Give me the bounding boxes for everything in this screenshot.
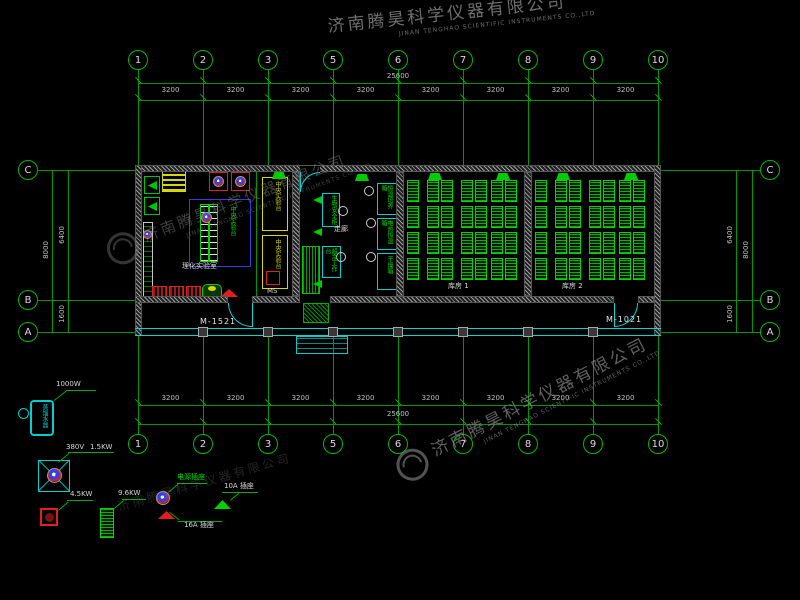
grid-bubble-col-bottom: 5	[323, 434, 343, 454]
dim-bay-label: 3200	[415, 394, 446, 402]
dim-bay-label: 3200	[285, 86, 316, 94]
grid-bubble-col-top: 2	[193, 50, 213, 70]
dimension-line	[138, 83, 659, 84]
dimension-line	[138, 100, 659, 101]
stool	[336, 252, 346, 262]
storage-rack-segment	[569, 232, 581, 254]
grid-line-vertical	[203, 70, 204, 165]
storage-rack-segment	[555, 258, 567, 280]
storage-rack-segment	[461, 180, 473, 202]
door-label-left: M-1521	[200, 317, 242, 326]
grid-line-vertical	[398, 70, 399, 165]
dimension-line	[138, 424, 659, 425]
grid-bubble-col-bottom: 3	[258, 434, 278, 454]
grid-line-vertical	[333, 70, 334, 165]
dim-bay-label: 3200	[350, 86, 381, 94]
room-label: 理化实验室	[182, 263, 230, 271]
dim-label-vertical: 6400	[58, 220, 66, 250]
leader-line	[177, 483, 207, 484]
storage-rack-segment	[603, 180, 615, 202]
dim-bay-label: 3200	[545, 86, 576, 94]
dim-bay-label: 3200	[350, 394, 381, 402]
storage-rack-segment	[427, 232, 439, 254]
bench-zone	[189, 199, 251, 267]
leader-line	[68, 452, 114, 453]
stool	[366, 252, 376, 262]
watermark: 济南腾昊科学仪器有限公司 JINAN TENGHAO SCIENTIFIC IN…	[391, 326, 662, 486]
grid-line-horizontal	[661, 300, 760, 301]
storage-rack-segment	[555, 206, 567, 228]
grid-line-vertical	[398, 336, 399, 434]
grid-line-vertical	[268, 336, 269, 434]
grid-line-vertical	[658, 70, 659, 165]
storage-rack-segment	[619, 206, 631, 228]
diffuser-icon	[624, 173, 638, 180]
storage-rack-segment	[475, 258, 487, 280]
storage-rack-segment	[461, 206, 473, 228]
window-icon	[523, 327, 533, 337]
storage-rack-segment	[491, 206, 503, 228]
leader-line	[54, 390, 67, 401]
storage-rack-segment	[491, 232, 503, 254]
wall-top	[135, 165, 661, 172]
storage-rack-segment	[475, 232, 487, 254]
dim-bay-label: 3200	[220, 86, 251, 94]
dim-total-label: 25600	[368, 72, 428, 80]
legend-socket-power-label: 电源插座	[177, 474, 205, 482]
grid-bubble-row-right: C	[760, 160, 780, 180]
wall-cabinet	[162, 170, 186, 192]
leader-line	[114, 500, 124, 508]
grid-bubble-col-top: 5	[323, 50, 343, 70]
storage-rack-segment	[491, 180, 503, 202]
dim-label-vertical: 1600	[726, 299, 734, 329]
dim-bay-label: 3200	[480, 394, 511, 402]
storage-label: 库房 2	[562, 283, 594, 291]
grid-bubble-col-top: 7	[453, 50, 473, 70]
storage-rack-segment	[441, 180, 453, 202]
stool	[364, 186, 374, 196]
storage-rack-segment	[407, 180, 419, 202]
storage-rack-segment	[589, 180, 601, 202]
window-icon	[198, 327, 208, 337]
storage-rack-segment	[619, 232, 631, 254]
wall-interior-right	[524, 172, 532, 296]
grid-line-horizontal	[661, 170, 760, 171]
window-icon	[393, 327, 403, 337]
wall-south-segment	[638, 296, 654, 303]
instrument-label: 电热恒温箱	[384, 220, 392, 248]
grid-bubble-col-top: 1	[128, 50, 148, 70]
window-icon	[588, 327, 598, 337]
legend-rack-power: 9.6KW	[118, 490, 140, 498]
stool	[338, 206, 348, 216]
storage-rack-segment	[535, 232, 547, 254]
door-label-right: M-1021	[606, 315, 648, 324]
storage-rack-segment	[535, 180, 547, 202]
window-icon	[263, 327, 273, 337]
storage-rack-segment	[441, 232, 453, 254]
sink-tap	[208, 286, 216, 291]
grid-bubble-row-left: C	[18, 160, 38, 180]
grid-bubble-col-top: 9	[583, 50, 603, 70]
dimension-line-vertical	[752, 170, 753, 332]
diffuser-arrow-icon	[313, 196, 322, 204]
storage-rack-segment	[427, 258, 439, 280]
grid-bubble-col-bottom: 6	[388, 434, 408, 454]
window-icon	[328, 327, 338, 337]
storage-rack-segment	[603, 258, 615, 280]
stool	[366, 218, 376, 228]
dim-label-vertical: 6400	[726, 220, 734, 250]
instrument-label: 恒温培养箱	[384, 185, 392, 213]
grid-line-horizontal	[38, 332, 135, 333]
instrument-label: 生物安全柜	[328, 195, 336, 225]
leader-line	[58, 502, 69, 511]
diffuser-icon	[428, 173, 442, 180]
grid-line-vertical	[268, 70, 269, 165]
dim-bay-label: 3200	[220, 394, 251, 402]
instrument-label: 超净工作台	[328, 248, 336, 276]
storage-rack-segment	[535, 258, 547, 280]
dimension-line-vertical	[736, 170, 737, 332]
storage-rack-segment	[491, 258, 503, 280]
legend-rack-symbol	[100, 508, 114, 538]
dimension-line-vertical	[68, 170, 69, 332]
entry-mat	[303, 303, 329, 323]
storage-rack-segment	[475, 180, 487, 202]
grid-bubble-col-bottom: 8	[518, 434, 538, 454]
door-leaf	[252, 303, 253, 327]
diffuser-icon	[556, 173, 570, 180]
fan-icon	[213, 176, 224, 187]
storage-rack-segment	[633, 206, 645, 228]
grid-bubble-col-bottom: 9	[583, 434, 603, 454]
legend-heater-power: 4.5KW	[70, 491, 92, 499]
storage-rack-segment	[633, 258, 645, 280]
watermark-text-en: JINAN TENGHAO SCIENTIFIC INSTRUMENTS CO.…	[399, 10, 596, 38]
storage-rack-segment	[407, 258, 419, 280]
legend-mixer-power: 1.5KW	[90, 444, 112, 452]
storage-rack-segment	[505, 232, 517, 254]
legend-socket-10a-icon	[214, 500, 231, 509]
fan-icon	[235, 176, 246, 187]
legend-socket-16a-label: 16A 插座	[184, 522, 214, 530]
storage-rack-segment	[589, 206, 601, 228]
storage-rack-segment	[633, 232, 645, 254]
wall-left	[135, 165, 142, 336]
dim-label-vertical: 8000	[742, 235, 750, 265]
grid-line-vertical	[658, 336, 659, 434]
dim-bay-label: 3200	[610, 394, 641, 402]
tall-rack	[302, 246, 320, 294]
grid-line-horizontal	[661, 332, 760, 333]
storage-rack-segment	[407, 206, 419, 228]
window-icon	[458, 327, 468, 337]
wall-south-segment	[252, 296, 300, 303]
grid-bubble-row-left: A	[18, 322, 38, 342]
storage-rack-segment	[441, 206, 453, 228]
grid-line-vertical	[593, 70, 594, 165]
fan-icon	[201, 212, 212, 223]
leader-line	[67, 500, 93, 501]
storage-rack-segment	[505, 258, 517, 280]
storage-rack-segment	[555, 232, 567, 254]
legend-socket-10a-label: 10A 插座	[224, 483, 254, 491]
storage-rack-segment	[569, 258, 581, 280]
watermark: 济南腾昊科学仪器有限公司	[116, 449, 294, 515]
storage-label: 库房 1	[448, 283, 480, 291]
storage-rack-segment	[427, 180, 439, 202]
dimension-line-vertical	[52, 170, 53, 332]
dimension-line	[138, 405, 659, 406]
grid-line-vertical	[203, 336, 204, 434]
dim-bay-label: 3200	[480, 86, 511, 94]
grid-bubble-col-bottom: 10	[648, 434, 668, 454]
fan-icon	[143, 230, 152, 239]
dim-bay-label: 3200	[155, 86, 186, 94]
legend-heater-core	[45, 513, 54, 522]
storage-rack-segment	[475, 206, 487, 228]
watermark-text-cn: 济南腾昊科学仪器有限公司	[116, 449, 294, 515]
dim-bay-label: 3200	[415, 86, 446, 94]
storage-rack-segment	[461, 232, 473, 254]
watermark-text-cn: 济南腾昊科学仪器有限公司	[326, 0, 595, 37]
grid-line-vertical	[528, 336, 529, 434]
storage-rack-segment	[505, 206, 517, 228]
leader-line	[230, 492, 240, 500]
dim-bay-label: 3200	[545, 394, 576, 402]
storage-rack-segment	[555, 180, 567, 202]
side-bench-label: 中央实验台	[271, 181, 280, 227]
dim-bay-label: 3200	[285, 394, 316, 402]
grid-bubble-col-top: 8	[518, 50, 538, 70]
storage-rack-segment	[603, 232, 615, 254]
legend-mixer-fan-icon	[47, 468, 62, 483]
legend-distiller-label: 蒸馏水器	[38, 404, 47, 432]
wall-right	[654, 165, 661, 336]
storage-rack-segment	[505, 180, 517, 202]
legend-mixer-voltage: 380V	[66, 444, 84, 452]
cad-drawing-canvas: 济南腾昊科学仪器有限公司 JINAN TENGHAO SCIENTIFIC IN…	[0, 0, 800, 600]
diffuser-arrow-icon	[313, 228, 322, 236]
grid-bubble-row-right: A	[760, 322, 780, 342]
dim-bay-label: 3200	[610, 86, 641, 94]
storage-rack-segment	[441, 258, 453, 280]
storage-rack-segment	[603, 206, 615, 228]
storage-rack-segment	[569, 180, 581, 202]
dim-total-label: 25600	[368, 410, 428, 418]
legend-distiller-power: 1000W	[56, 381, 81, 389]
grid-line-vertical	[138, 336, 139, 434]
grid-bubble-col-top: 10	[648, 50, 668, 70]
grid-line-vertical	[138, 70, 139, 165]
leader-line	[66, 390, 96, 391]
central-bench-label: 中央实验台	[226, 206, 235, 262]
storage-rack-segment	[535, 206, 547, 228]
storage-rack-segment	[619, 258, 631, 280]
storage-rack-segment	[589, 232, 601, 254]
legend-distiller-circle	[18, 408, 29, 419]
grid-line-vertical	[463, 336, 464, 434]
grid-line-vertical	[463, 70, 464, 165]
grid-bubble-col-top: 3	[258, 50, 278, 70]
legend-socket-fan-icon	[156, 491, 170, 505]
watermark: 济南腾昊科学仪器有限公司 JINAN TENGHAO SCIENTIFIC IN…	[326, 0, 595, 45]
entry-steps	[296, 336, 348, 354]
top-wall-door-gap	[300, 166, 320, 172]
diffuser-icon	[355, 174, 369, 181]
storage-rack-segment	[461, 258, 473, 280]
storage-rack-segment	[569, 206, 581, 228]
storage-rack-segment	[407, 232, 419, 254]
wall-south-segment	[135, 296, 228, 303]
door-leaf	[300, 172, 301, 192]
wall-interior-left	[292, 172, 300, 296]
grid-bubble-col-bottom: 7	[453, 434, 473, 454]
leader-line	[168, 484, 179, 493]
grid-bubble-col-bottom: 1	[128, 434, 148, 454]
dim-bay-label: 3200	[155, 394, 186, 402]
grid-bubble-row-right: B	[760, 290, 780, 310]
grid-line-vertical	[528, 70, 529, 165]
storage-rack-segment	[633, 180, 645, 202]
grid-line-vertical	[593, 336, 594, 434]
door-arc	[300, 172, 320, 192]
diffuser-icon	[272, 172, 286, 179]
corridor-label: 走廊	[334, 226, 354, 234]
dim-label-vertical: 1600	[58, 299, 66, 329]
grid-bubble-col-bottom: 2	[193, 434, 213, 454]
leader-line	[122, 499, 146, 500]
storage-rack-segment	[427, 206, 439, 228]
ms-tag: MS	[267, 288, 281, 296]
instrument-label: 干燥箱	[384, 256, 392, 286]
wall-south-segment	[330, 296, 614, 303]
wall-interior-mid	[396, 172, 404, 296]
storage-rack-segment	[619, 180, 631, 202]
diffuser-icon	[496, 173, 510, 180]
storage-rack-segment	[589, 258, 601, 280]
dim-label-vertical: 8000	[42, 235, 50, 265]
room-divider	[256, 172, 257, 296]
side-bench-label: 中央实验台	[271, 239, 280, 285]
grid-bubble-col-top: 6	[388, 50, 408, 70]
grid-bubble-row-left: B	[18, 290, 38, 310]
leader-line	[222, 492, 258, 493]
